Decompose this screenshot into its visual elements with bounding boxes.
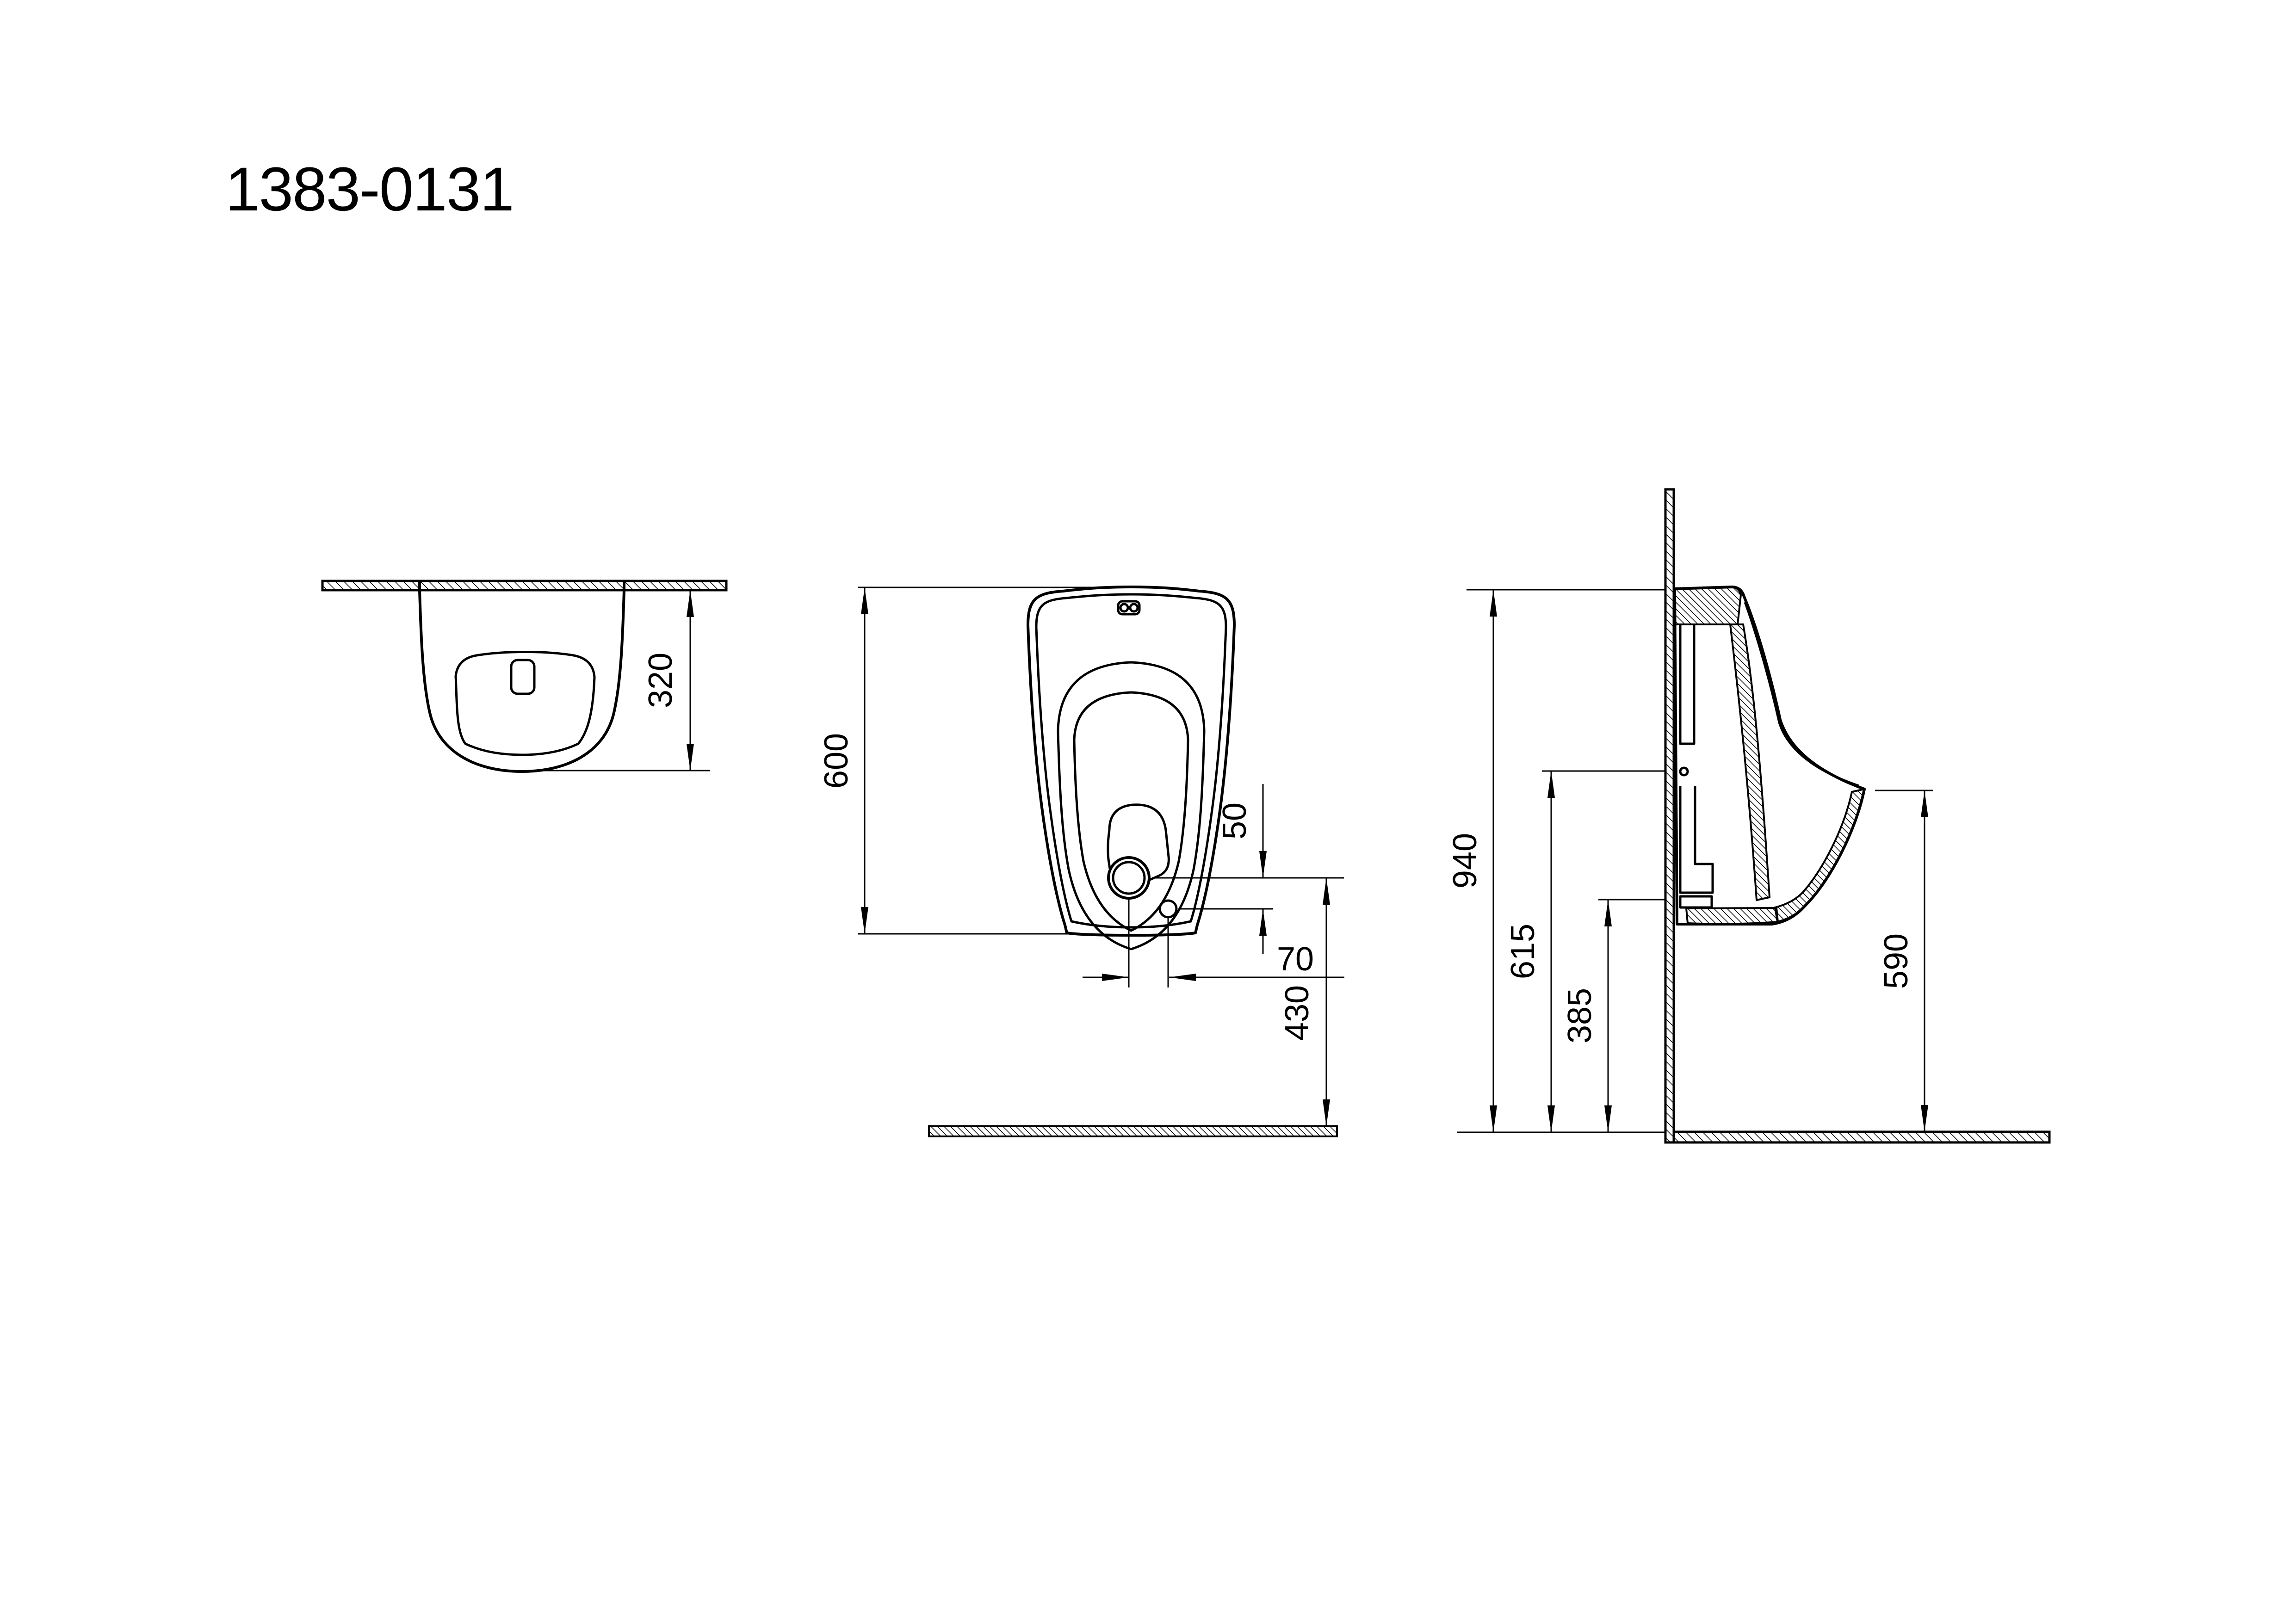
top-view-wall-section — [322, 581, 726, 590]
dimension-label-385: 385 — [1561, 988, 1598, 1043]
dimension-label-615: 615 — [1504, 924, 1541, 979]
dimension-label-70: 70 — [1277, 941, 1314, 978]
front-view-floor-section — [929, 1126, 1337, 1136]
side-view-section-base — [1686, 908, 1778, 924]
dimension-label-600: 600 — [818, 733, 855, 789]
side-view-wall-section — [1665, 489, 1674, 1142]
technical-drawing-canvas: 1383-0131 320 — [0, 0, 2296, 1623]
side-view-floor-section — [1674, 1132, 2049, 1142]
page-title: 1383-0131 — [225, 155, 514, 224]
dimension-label-320: 320 — [642, 653, 679, 708]
dimension-label-590: 590 — [1878, 933, 1915, 989]
dimension-label-50: 50 — [1216, 802, 1253, 839]
front-view-drain-outer — [1108, 858, 1149, 898]
dimension-label-940: 940 — [1447, 833, 1484, 889]
side-view-section-top-band — [1675, 587, 1741, 624]
dimension-label-430: 430 — [1279, 985, 1316, 1041]
